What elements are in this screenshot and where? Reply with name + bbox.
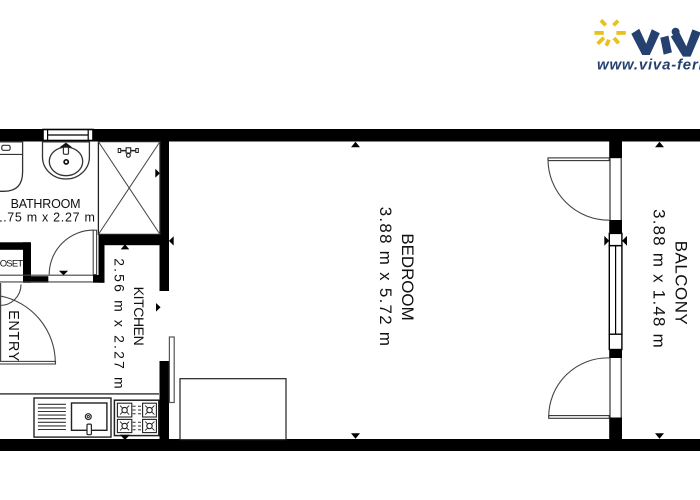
- svg-text:3.88 m x 1.48 m: 3.88 m x 1.48 m: [650, 209, 669, 349]
- svg-text:OSET: OSET: [0, 258, 23, 269]
- svg-text:3.88 m x 5.72 m: 3.88 m x 5.72 m: [376, 207, 395, 348]
- svg-text:BEDROOM: BEDROOM: [398, 233, 417, 320]
- svg-text:www.viva-ferien: www.viva-ferien: [597, 57, 700, 74]
- svg-text:2.56 m x 2.27 m: 2.56 m x 2.27 m: [112, 258, 128, 391]
- svg-text:1.75 m x 2.27 m: 1.75 m x 2.27 m: [0, 211, 96, 225]
- svg-text:ENTRY: ENTRY: [5, 310, 21, 362]
- svg-text:BATHROOM: BATHROOM: [11, 197, 81, 211]
- svg-text:KITCHEN: KITCHEN: [131, 287, 147, 346]
- svg-text:BALCONY: BALCONY: [672, 241, 691, 326]
